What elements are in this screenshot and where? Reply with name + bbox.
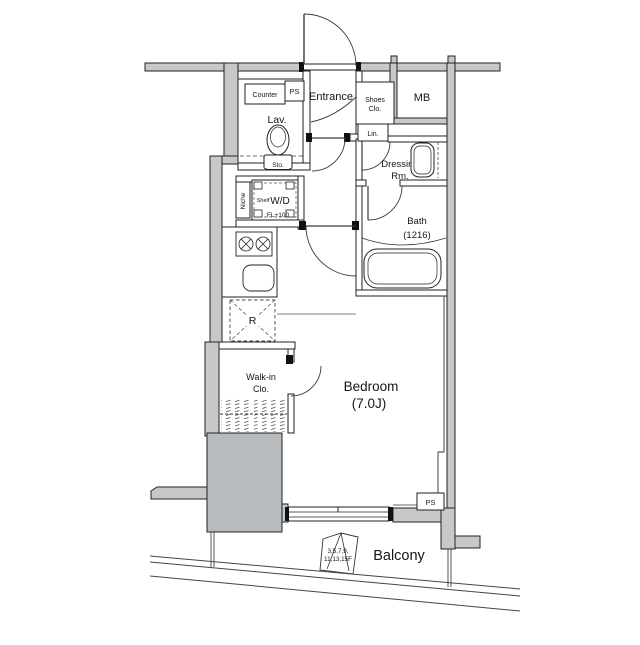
- wall-segment: [358, 63, 500, 71]
- bath-label: (1216): [403, 230, 430, 241]
- shoes-closet-label: Shoes: [365, 97, 385, 104]
- window-end-cap: [388, 507, 393, 521]
- counter-label: Counter: [253, 92, 279, 99]
- wall-segment: [356, 139, 362, 296]
- refrigerator-label: R: [249, 315, 257, 327]
- wall-segment: [288, 394, 294, 433]
- shoes-closet-label: Clo.: [369, 106, 382, 113]
- meter-box-label: MB: [414, 92, 431, 104]
- stove-fixture: [236, 232, 272, 256]
- bath-label: Bath: [407, 216, 427, 227]
- linen-label: Lin.: [367, 131, 378, 138]
- sink-fixture: [243, 265, 274, 291]
- walkin-label: Clo.: [253, 384, 269, 394]
- floor-plan-page: Counter PS Shoes Clo. MB Entrance Lin. L…: [0, 0, 640, 640]
- ps-lower-label: PS: [425, 498, 435, 507]
- structural-pillar: [207, 433, 282, 532]
- pipe-shaft-lower: PS: [417, 493, 444, 510]
- wall-segment: [390, 118, 455, 124]
- wall-segment: [210, 156, 222, 342]
- entrance-door-swing: [304, 14, 356, 66]
- wall-segment: [356, 180, 366, 186]
- washer-dryer-area: Niche Shelf W/D FL+100: [236, 180, 298, 220]
- hanger-area: [254, 398, 287, 432]
- ps-upper-label: PS: [289, 87, 299, 96]
- washer-dryer-label: W/D: [270, 196, 289, 207]
- storage-label: Sto.: [272, 162, 284, 169]
- kitchen-area: R: [222, 227, 356, 341]
- shelf-label: Shelf: [257, 198, 270, 204]
- bedroom-door-swing: [306, 226, 356, 276]
- wall-segment: [236, 220, 304, 227]
- wall-segment: [388, 136, 447, 142]
- refrigerator-space: R: [230, 300, 275, 341]
- floor-level-label: FL+100: [267, 212, 290, 219]
- bedroom-room: Bedroom (7.0J) PS: [344, 296, 444, 510]
- wall-segment: [455, 536, 480, 548]
- pipe-shaft-upper: PS: [285, 81, 304, 101]
- floors-label: 11,13,15F: [324, 556, 352, 563]
- floor-plan-drawing: Counter PS Shoes Clo. MB Entrance Lin. L…: [0, 0, 640, 640]
- floor-annotation: 3,5,7,9, 11,13,15F: [320, 533, 358, 574]
- shoes-closet: Shoes Clo.: [356, 82, 394, 124]
- window-end-cap: [285, 507, 289, 521]
- floors-label: 3,5,7,9,: [327, 548, 348, 555]
- wall-segment: [205, 342, 219, 436]
- wall-stub: [151, 487, 207, 499]
- wall-segment: [447, 63, 455, 515]
- balcony-window: [285, 507, 393, 521]
- wall-segment: [441, 508, 455, 549]
- hanger-area: [221, 398, 249, 432]
- balcony-label: Balcony: [373, 548, 425, 564]
- walkin-closet: Walk-in Clo.: [220, 372, 287, 432]
- linen-closet: Lin.: [358, 124, 388, 141]
- wall-segment: [219, 342, 295, 349]
- lavatory-label: Lav.: [267, 114, 286, 126]
- wall-segment: [356, 290, 447, 296]
- bath-room: Bath (1216): [362, 216, 446, 288]
- bedroom-inner-wall-line: [438, 296, 444, 493]
- niche-label: Niche: [240, 192, 247, 209]
- vanity-fixture: [411, 143, 434, 177]
- bathtub-fixture: [364, 249, 441, 288]
- lavatory-room: Lav. Sto.: [240, 114, 303, 169]
- bedroom-label: (7.0J): [352, 396, 387, 411]
- hall-door-swing: [312, 138, 345, 171]
- counter-box: Counter: [245, 84, 285, 104]
- bath-door-swing: [368, 186, 402, 220]
- walkin-closet-door-swing: [291, 366, 321, 396]
- entrance-label: Entrance: [309, 91, 353, 103]
- walkin-label: Walk-in: [246, 372, 276, 382]
- exterior-walls: [145, 56, 500, 549]
- wall-segment: [224, 63, 238, 164]
- bedroom-label: Bedroom: [344, 379, 399, 394]
- dressing-label: Rm.: [391, 171, 408, 182]
